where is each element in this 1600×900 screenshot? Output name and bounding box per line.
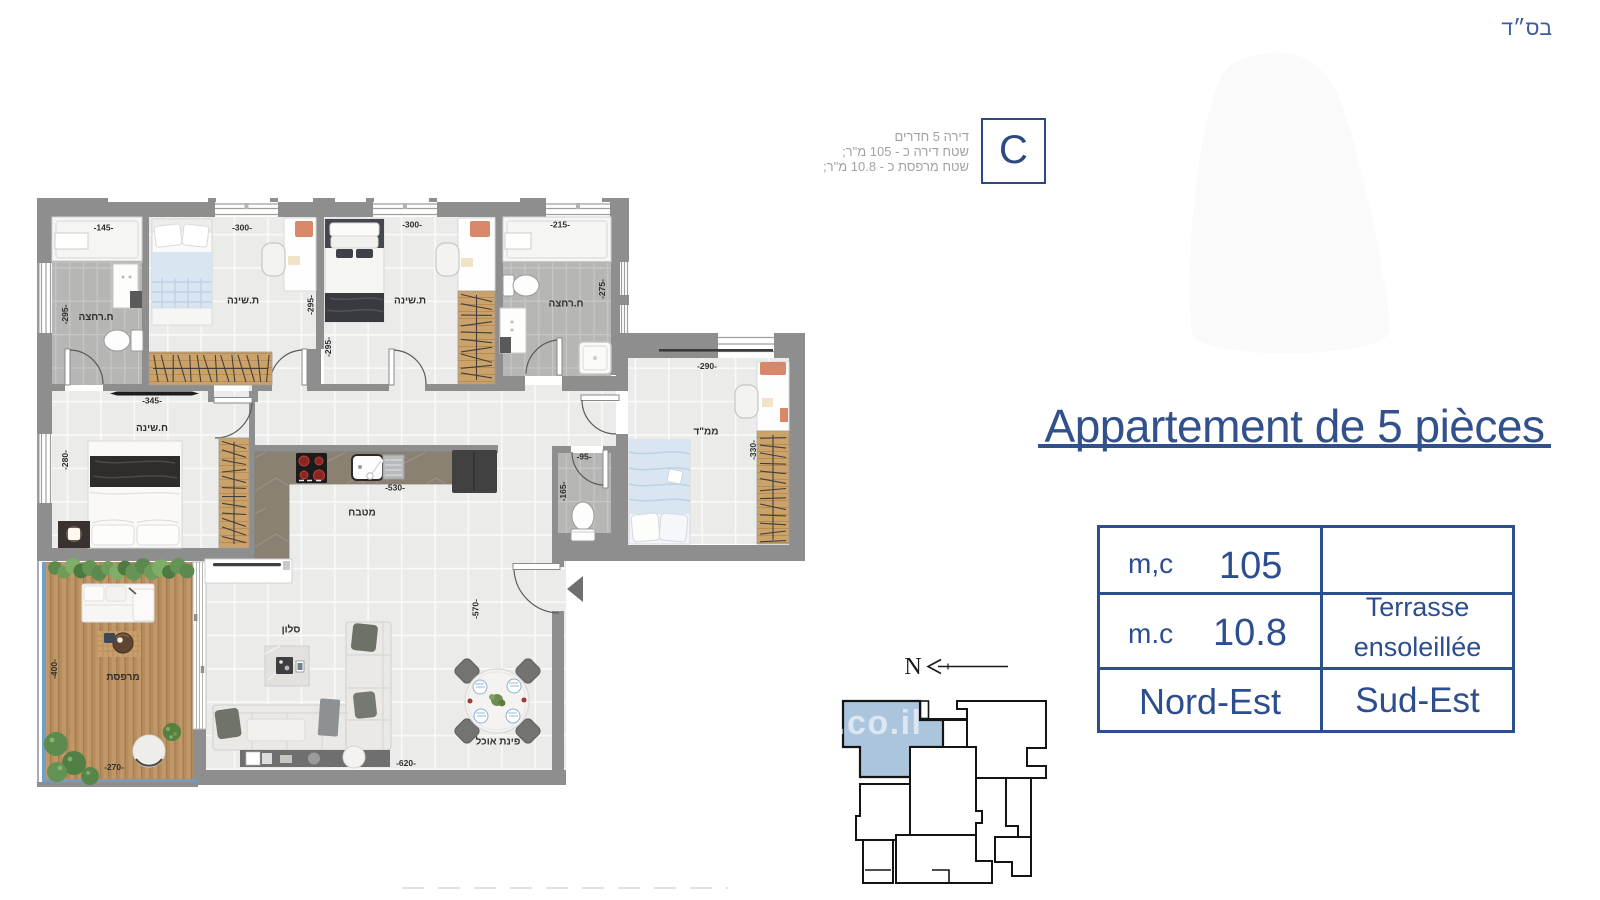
- svg-text:ת.שינה: ת.שינה: [227, 296, 259, 307]
- svg-text:.co.il: .co.il: [836, 704, 922, 742]
- svg-text:-215-: -215-: [550, 220, 570, 230]
- svg-text:סלון: סלון: [282, 624, 301, 636]
- svg-text:-295-: -295-: [60, 304, 70, 324]
- svg-text:-330-: -330-: [748, 440, 758, 460]
- svg-text:-295-: -295-: [306, 295, 316, 315]
- svg-text:-345-: -345-: [142, 396, 162, 406]
- svg-text:N: N: [904, 654, 921, 680]
- svg-text:-620-: -620-: [396, 758, 416, 768]
- svg-text:-300-: -300-: [402, 220, 422, 230]
- svg-text:-275-: -275-: [597, 279, 607, 299]
- svg-text:-570-: -570-: [471, 599, 481, 619]
- svg-text:-295-: -295-: [323, 337, 333, 357]
- svg-text:ח.רחצה: ח.רחצה: [78, 312, 113, 323]
- svg-text:ת.שינה: ת.שינה: [394, 296, 426, 307]
- svg-text:ממ"ד: ממ"ד: [693, 427, 718, 438]
- svg-text:ח.שינה: ח.שינה: [136, 423, 168, 434]
- svg-text:מרפסת: מרפסת: [106, 672, 139, 683]
- svg-text:-165-: -165-: [558, 481, 568, 501]
- svg-text:פינת אוכל: פינת אוכל: [476, 736, 521, 748]
- svg-text:-530-: -530-: [385, 483, 405, 493]
- svg-text:-400-: -400-: [49, 659, 59, 679]
- svg-text:-290-: -290-: [697, 361, 717, 371]
- svg-text:-300-: -300-: [232, 223, 252, 233]
- svg-text:ח.רחצה: ח.רחצה: [548, 299, 583, 310]
- svg-text:-270-: -270-: [104, 762, 124, 772]
- svg-text:-95-: -95-: [576, 452, 591, 462]
- svg-text:מטבח: מטבח: [348, 508, 376, 519]
- svg-text:-280-: -280-: [60, 450, 70, 470]
- svg-text:-145-: -145-: [94, 223, 114, 233]
